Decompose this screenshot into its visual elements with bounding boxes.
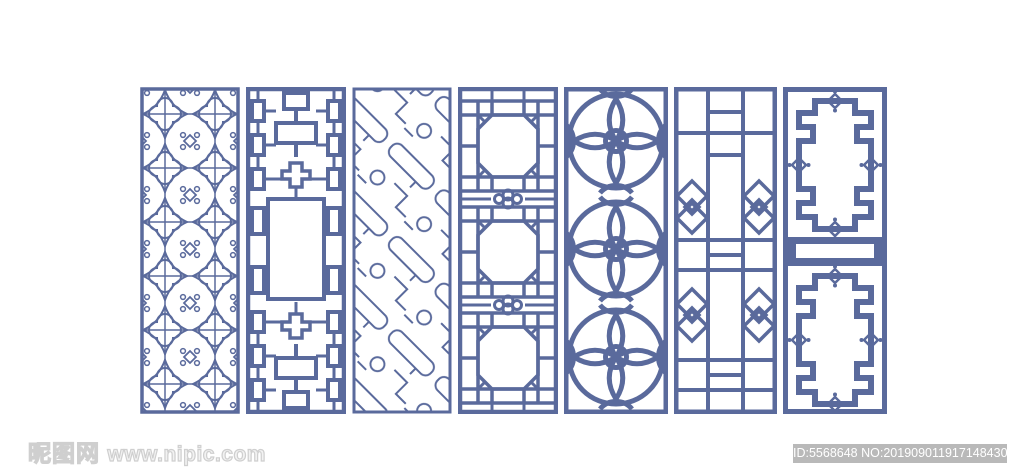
- image-canvas: 昵图网 www.nipic.com ID:5568648 NO:20190901…: [0, 0, 1024, 474]
- watermark-site-url: www.nipic.com: [107, 443, 266, 466]
- watermark-site-name: 昵图网: [28, 440, 100, 466]
- panel-interlocking-fret: [246, 87, 346, 414]
- watermark-nipic: 昵图网 www.nipic.com: [28, 438, 266, 468]
- lattice-panels-row: [140, 87, 887, 414]
- id-watermark-text: ID:5568648 NO:20190901191714843000: [793, 446, 1021, 460]
- panel-quatrefoil-lattice: [140, 87, 240, 414]
- id-watermark-bar: ID:5568648 NO:20190901191714843000: [793, 444, 1007, 463]
- panel-grid-diamond-lattice: [674, 87, 777, 414]
- panel-diagonal-fret-circles: [352, 87, 452, 414]
- panel-octagon-grid: [458, 87, 558, 414]
- panel-stepped-frame: [783, 87, 887, 414]
- panel-petal-flower-lattice: [564, 87, 668, 414]
